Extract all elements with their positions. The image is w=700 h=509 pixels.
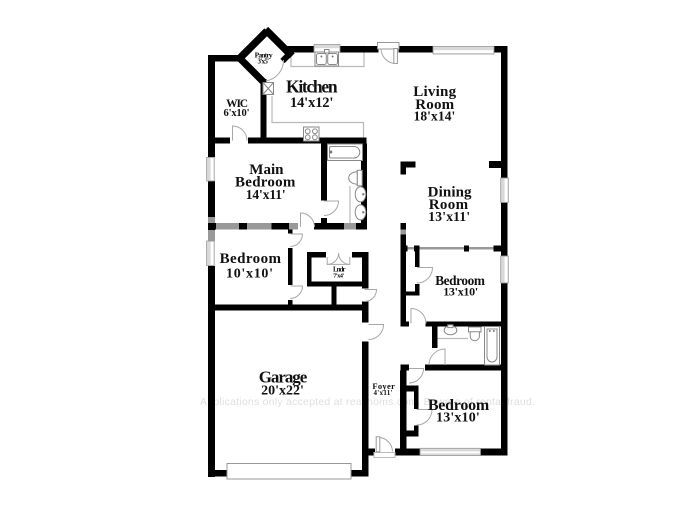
svg-text:13'x10': 13'x10' <box>443 285 478 299</box>
svg-text:7'x4': 7'x4' <box>333 272 344 279</box>
svg-text:18'x14': 18'x14' <box>414 108 456 123</box>
svg-text:20'x22': 20'x22' <box>261 383 304 398</box>
svg-text:Bedroom: Bedroom <box>220 251 282 267</box>
svg-text:4'x11': 4'x11' <box>374 389 393 397</box>
svg-text:6'x10': 6'x10' <box>224 108 250 119</box>
svg-text:13'x11': 13'x11' <box>428 209 470 224</box>
svg-text:3'x5': 3'x5' <box>258 58 270 66</box>
svg-text:10'x10': 10'x10' <box>226 266 273 281</box>
svg-text:14'x12': 14'x12' <box>290 95 334 111</box>
svg-text:13'x10': 13'x10' <box>436 411 480 426</box>
svg-text:Kitchen: Kitchen <box>286 77 338 97</box>
svg-text:14'x11': 14'x11' <box>246 187 286 202</box>
